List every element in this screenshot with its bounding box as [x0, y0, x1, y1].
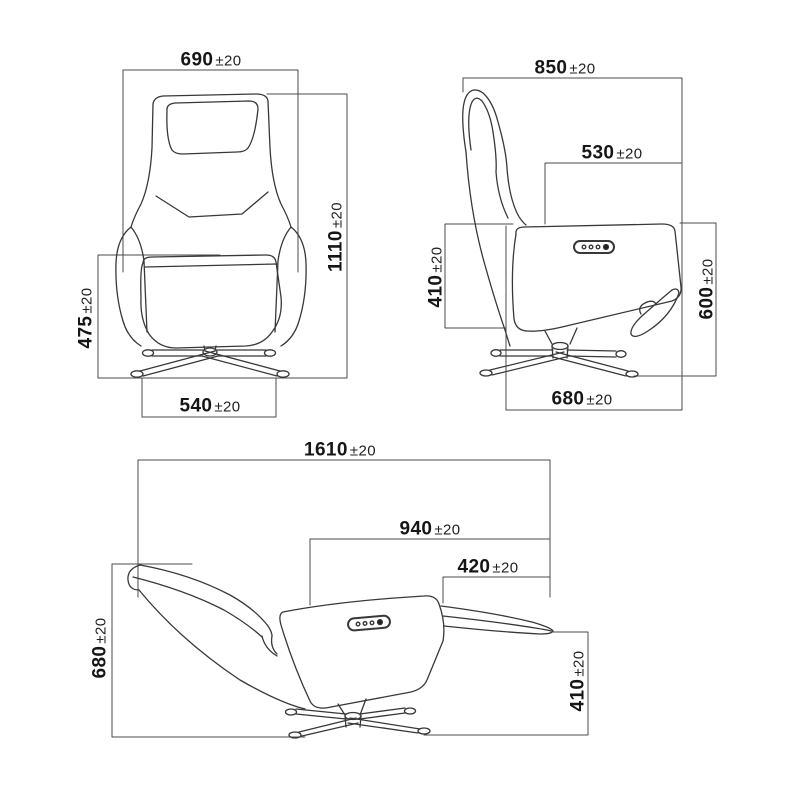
dim-value: 540 [179, 397, 212, 416]
reclined-base-leg-upper-left [296, 709, 346, 719]
front-footrest-panel [141, 255, 282, 348]
side-base-foot-upper-right [616, 351, 626, 358]
reclined-control-dot-1 [356, 622, 360, 626]
dim-label-side-total-depth: 850±20 [534, 59, 595, 78]
side-underseat [545, 328, 577, 344]
dim-value: 1610 [304, 441, 348, 460]
dim-label-front-height-total: 1110±20 [327, 202, 346, 272]
reclined-control-dot-3 [370, 621, 374, 625]
dim-label-reclined-seat-length: 940±20 [399, 520, 460, 539]
reclined-base-leg-lower-right [348, 718, 420, 733]
reclined-base-leg-lower-left [299, 718, 358, 736]
front-chair-art [116, 94, 306, 377]
dim-value: 1110 [327, 230, 346, 272]
side-base-foot-upper-left [491, 350, 501, 357]
dim-tolerance: ±20 [330, 202, 345, 228]
dim-label-reclined-total-length: 1610±20 [304, 441, 376, 460]
side-control-panel [574, 241, 614, 253]
reclined-back-seat-fold [262, 636, 277, 656]
side-view [445, 78, 716, 410]
front-armrest-inner-left [131, 227, 147, 332]
reclined-control-dot-2 [363, 621, 367, 625]
front-base-foot-upper-left [143, 350, 154, 356]
dim-label-front-height-footrest: 475±20 [77, 287, 96, 348]
dim-value: 410 [427, 275, 446, 308]
side-chair-art [463, 90, 681, 377]
reclined-base-foot-upper-left [286, 709, 297, 715]
side-back-lower [466, 152, 510, 346]
dim-label-reclined-footrest-height: 410±20 [569, 650, 588, 711]
dim-tolerance: ±20 [215, 54, 241, 69]
recliner-three-view-drawing [0, 0, 800, 800]
dim-tolerance: ±20 [94, 617, 109, 643]
dim-value: 680 [551, 390, 584, 409]
reclined-dimension-lines [112, 460, 588, 737]
dim-label-side-seat-front-height: 410±20 [427, 246, 446, 307]
front-base-leg-upper-left [152, 350, 203, 356]
side-base-leg-upper-left [500, 350, 553, 356]
dim-label-front-base-width: 540±20 [179, 397, 240, 416]
dim-line-side-total-depth [463, 78, 682, 410]
front-back-seam [156, 192, 268, 217]
dim-tolerance: ±20 [350, 444, 376, 459]
side-control-dot-1 [582, 245, 586, 249]
front-armrest-inner-right [275, 227, 291, 332]
side-base-leg-upper-right [567, 350, 616, 357]
front-base-leg-upper-right [217, 350, 266, 356]
dim-label-reclined-footrest-length: 420±20 [457, 558, 518, 577]
side-armrest-blade [631, 289, 679, 336]
side-base-foot-lower-right [626, 371, 638, 377]
reclined-control-panel [348, 615, 391, 631]
dim-label-side-seat-depth: 530±20 [581, 144, 642, 163]
dim-tolerance: ±20 [616, 147, 642, 162]
front-base-foot-lower-left [131, 371, 143, 377]
reclined-chair-art [128, 565, 553, 738]
dim-value: 940 [399, 520, 432, 539]
dim-value: 420 [457, 558, 490, 577]
reclined-back-lower-edge [139, 590, 305, 709]
reclined-back-top-edge [140, 565, 272, 636]
dim-line-reclined-back-height [112, 564, 305, 737]
dim-value: 690 [180, 51, 213, 70]
dim-label-side-seat-back-height: 600±20 [698, 258, 717, 319]
front-base-foot-lower-right [277, 371, 289, 377]
dim-value: 680 [91, 646, 110, 679]
reclined-base-leg-upper-right [360, 708, 405, 719]
side-control-dot-4 [603, 244, 608, 249]
dim-tolerance: ±20 [80, 287, 95, 313]
dim-tolerance: ±20 [586, 393, 612, 408]
side-base-foot-lower-left [480, 370, 492, 376]
reclined-seat-panel [280, 596, 444, 708]
front-dimension-lines [98, 70, 347, 417]
dim-tolerance: ±20 [434, 523, 460, 538]
reclined-base-foot-upper-right [405, 708, 416, 714]
reclined-back-inner-edge [133, 577, 262, 637]
dim-value: 475 [77, 316, 96, 349]
technical-drawing-canvas: 690±20 1110±20 475±20 540±20 850±20 530±… [0, 0, 800, 800]
front-base-foot-upper-right [265, 350, 276, 356]
reclined-base-foot-lower-right [418, 728, 430, 734]
front-chair-outline [153, 94, 306, 346]
dim-value: 530 [581, 144, 614, 163]
dim-line-reclined-footrest-height [424, 632, 588, 735]
dim-tolerance: ±20 [569, 62, 595, 77]
reclined-footrest-bottom [444, 626, 553, 634]
side-dimension-lines [445, 78, 716, 410]
side-base-hub-top [552, 343, 568, 350]
dim-tolerance: ±20 [701, 258, 716, 284]
front-footrest-piping [145, 264, 277, 267]
dim-tolerance: ±20 [430, 246, 445, 272]
side-control-dot-2 [589, 245, 593, 249]
dim-line-reclined-footrest-length [443, 577, 550, 603]
dim-tolerance: ±20 [214, 400, 240, 415]
reclined-control-pill [348, 615, 391, 631]
reclined-control-dot-4 [377, 619, 383, 625]
dim-tolerance: ±20 [572, 650, 587, 676]
side-control-dot-3 [596, 245, 600, 249]
dim-label-reclined-back-height: 680±20 [91, 617, 110, 678]
dim-line-side-seat-depth [545, 163, 682, 224]
front-view [98, 70, 347, 417]
dim-tolerance: ±20 [492, 561, 518, 576]
dim-label-front-width-top: 690±20 [180, 51, 241, 70]
dim-value: 850 [534, 59, 567, 78]
dim-value: 410 [569, 679, 588, 712]
dim-label-side-base-depth: 680±20 [551, 390, 612, 409]
dim-value: 600 [698, 287, 717, 320]
reclined-view [112, 460, 588, 738]
side-back-inner [469, 98, 508, 218]
front-chair-outline-left [116, 104, 153, 346]
front-headrest-seam [167, 101, 258, 154]
